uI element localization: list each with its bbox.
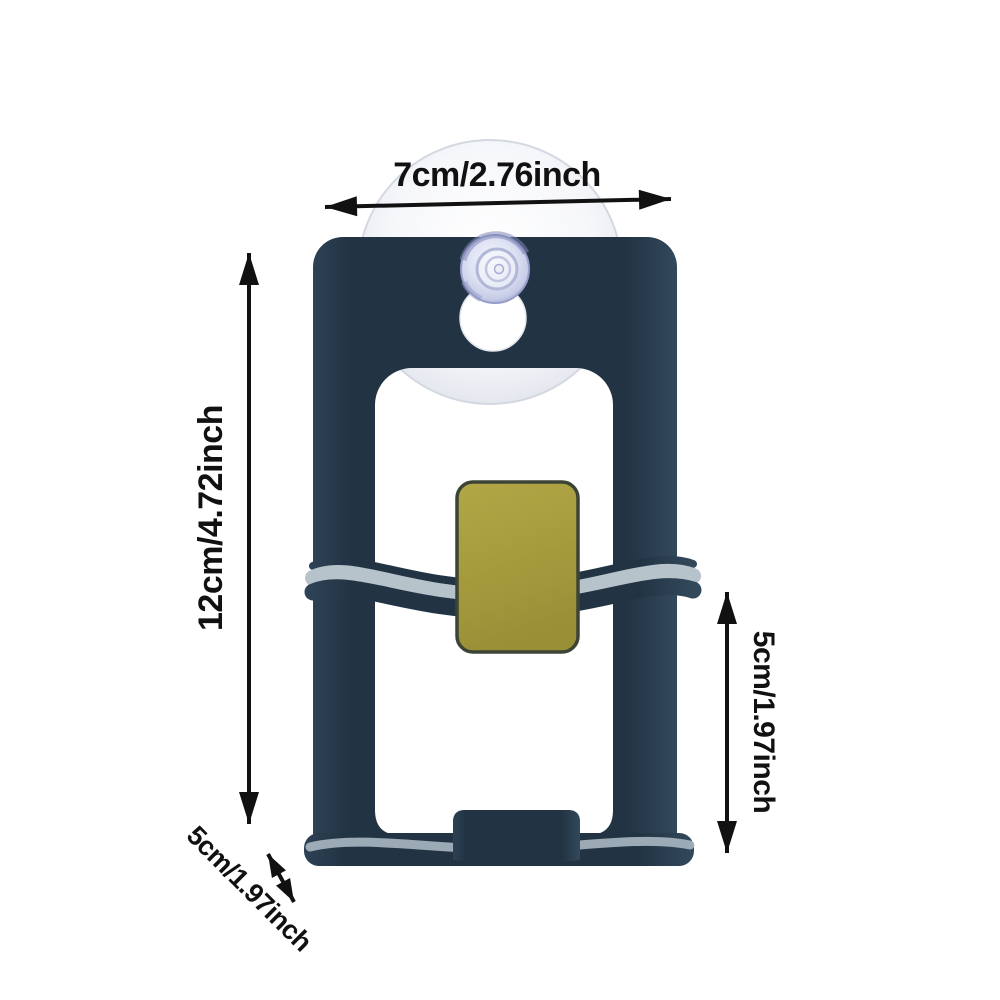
side-height-dimension-label: 5cm/1.97inch (748, 631, 778, 813)
width-dimension-label: 7cm/2.76inch (393, 158, 601, 192)
adhesive-pad (457, 482, 578, 652)
product-illustration (0, 0, 1000, 1000)
suction-cup-knob (461, 235, 529, 303)
product-dimension-diagram: 7cm/2.76inch 12cm/4.72inch 5cm/1.97inch … (0, 0, 1000, 1000)
bottom-tab (453, 810, 580, 864)
height-dimension-label: 12cm/4.72inch (194, 405, 228, 631)
